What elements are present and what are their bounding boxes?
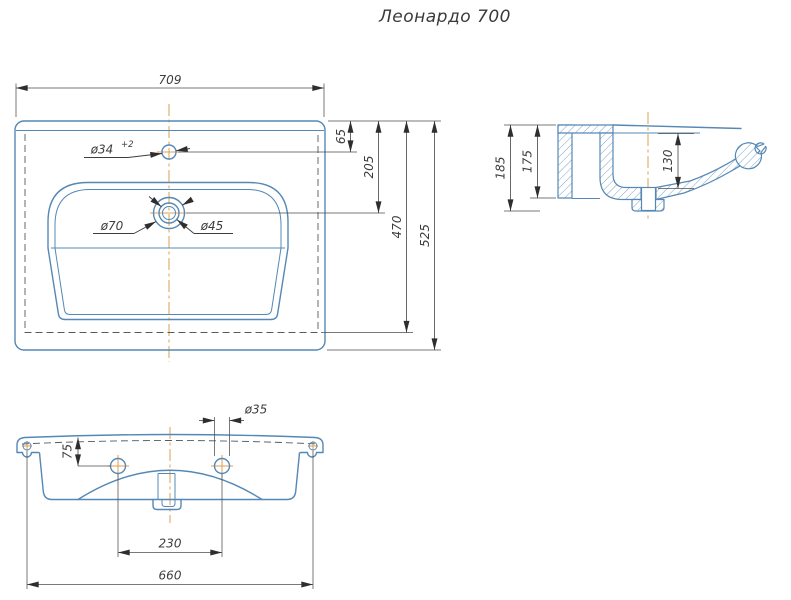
dim-overall-height: 185	[494, 157, 508, 180]
dim-hole-offset: 75	[61, 444, 75, 459]
dim-back-height: 175	[521, 150, 535, 173]
label-faucet-hole: ø34	[90, 143, 114, 157]
section-rear-rim	[558, 125, 613, 133]
dim-overall-depth: 525	[418, 224, 432, 247]
dim-mounting-width: 660	[159, 569, 182, 583]
dim-bowl-depth: 130	[661, 149, 675, 172]
section-drain-slot	[642, 188, 656, 211]
width-extension-lines	[16, 84, 324, 118]
bowl-inner-rim	[55, 190, 281, 249]
label-drain-inner: ø45	[200, 219, 224, 233]
dim-drain-offset: 205	[362, 156, 376, 179]
dim-faucet-offset: 65	[334, 129, 348, 144]
sink-outline	[15, 121, 325, 350]
technical-drawing: Леонардо 700	[0, 0, 791, 600]
dim-hole-diameter: ø35	[244, 403, 268, 417]
faucet-leader-1	[128, 154, 162, 158]
faucet-leader-2	[176, 149, 190, 151]
dim-overall-width: 709	[159, 73, 182, 87]
drawing-title: Леонардо 700	[378, 7, 511, 27]
section-back-wall	[558, 125, 572, 198]
front-view: 75 ø35 230 660	[17, 403, 323, 590]
front-drain-boss-outer	[153, 500, 181, 510]
hole-diameter-extensions	[215, 417, 230, 456]
dim-inner-depth: 470	[390, 215, 404, 238]
side-view: 185 175 130	[494, 112, 767, 221]
drain-outer-leader-1	[134, 222, 156, 234]
label-faucet-tolerance: +2	[121, 140, 134, 150]
drain-outer-leader-2	[182, 200, 192, 206]
drain-inner-leader-1	[177, 220, 194, 234]
section-bowl-back-wall	[600, 133, 641, 200]
dim-hole-spacing: 230	[159, 537, 182, 551]
label-drain-outer: ø70	[100, 219, 124, 233]
top-view: 709 65 205 470 525 ø34 +2 ø70 ø45	[15, 73, 441, 362]
front-drain-channel	[158, 474, 175, 500]
drawing-sheet: Леонардо 700	[0, 0, 791, 600]
front-drain-boss-inner	[162, 500, 175, 507]
hidden-underside-edge	[25, 134, 318, 333]
section-front-lip-hook	[735, 143, 766, 169]
bowl-inner-floor	[55, 248, 281, 315]
bowl-outer-rim	[48, 183, 288, 249]
deck-top-edge	[613, 125, 741, 129]
bowl-outer-floor	[48, 248, 288, 320]
